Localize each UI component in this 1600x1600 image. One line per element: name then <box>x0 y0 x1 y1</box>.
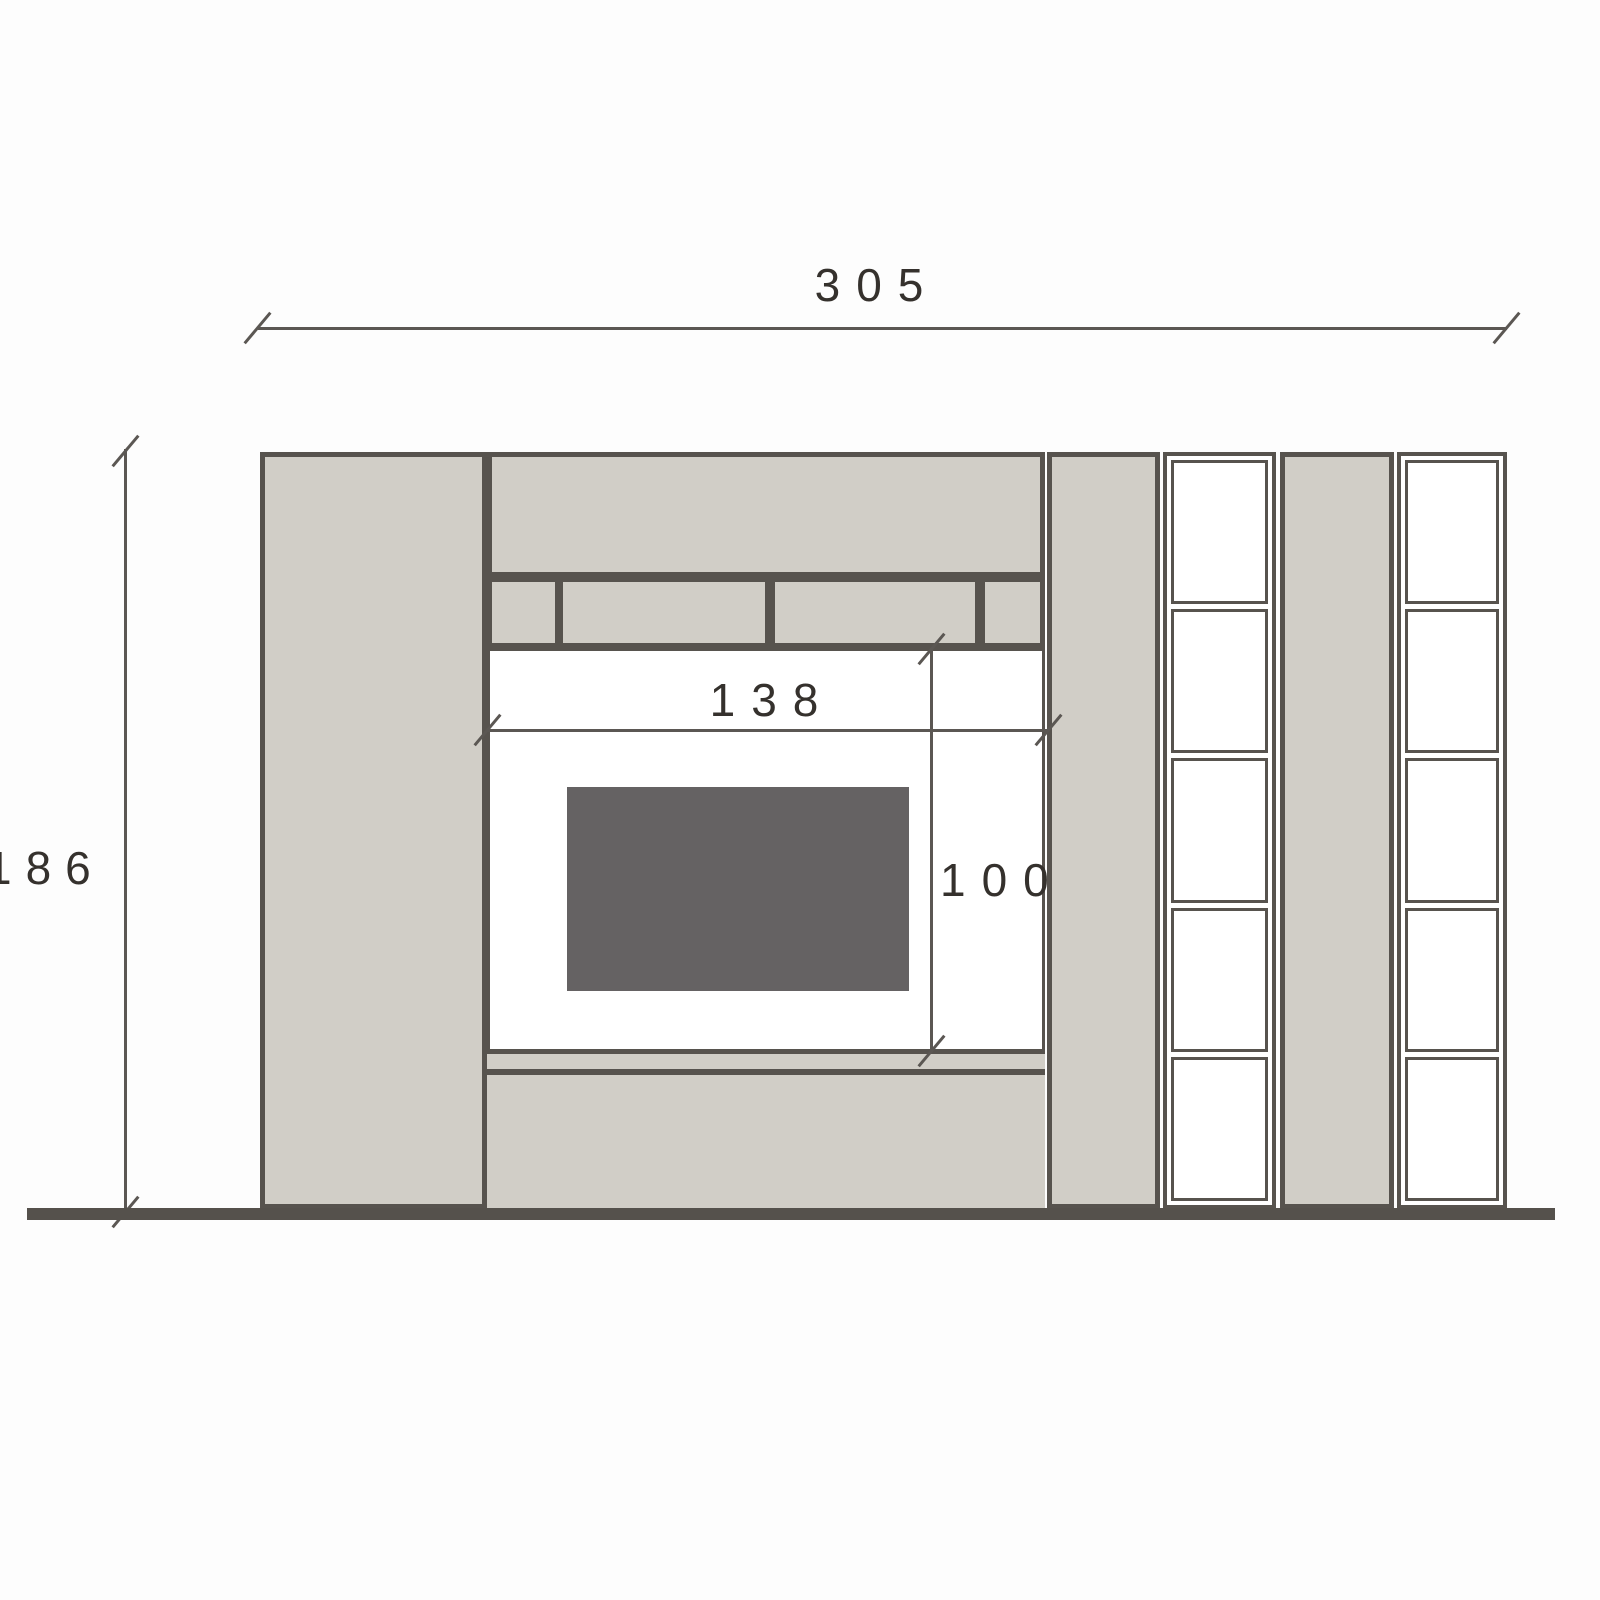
shelf-cell <box>1171 460 1268 604</box>
shelf-cell <box>1405 908 1499 1052</box>
shelf-cell <box>1405 609 1499 753</box>
niche-height-label: 100 <box>940 857 1065 903</box>
shelf-cell <box>1171 609 1268 753</box>
shelf-cell <box>1405 758 1499 902</box>
shelf-cell <box>1405 1057 1499 1201</box>
compartment-row <box>487 577 1045 648</box>
left-tall-cabinet <box>260 452 487 1209</box>
elevation-drawing: 305 186 <box>0 0 1600 1600</box>
niche-bottom-shelf <box>487 1049 1045 1075</box>
shelf-cell <box>1405 460 1499 604</box>
shelf-cell <box>1171 1057 1268 1201</box>
compartment-cell <box>563 582 765 643</box>
compartment-cell <box>985 582 1040 643</box>
side-panel-a <box>1047 452 1160 1209</box>
open-shelf-unit-b <box>1397 452 1507 1209</box>
ground-line <box>27 1208 1555 1220</box>
overall-height-dimension-line <box>124 449 127 1214</box>
overall-width-dimension-line <box>258 327 1507 330</box>
side-panel-b <box>1280 452 1394 1209</box>
shelf-cell <box>1171 908 1268 1052</box>
base-cabinet <box>487 1075 1045 1209</box>
overall-height-label: 186 <box>0 845 105 891</box>
niche-width-label: 138 <box>672 677 872 723</box>
niche-width-dimension-line <box>487 729 1049 732</box>
top-cabinet <box>487 452 1045 577</box>
tv-screen <box>567 787 909 991</box>
open-shelf-unit-a <box>1163 452 1276 1209</box>
compartment-cell <box>492 582 555 643</box>
shelf-cell <box>1171 758 1268 902</box>
niche-height-dimension-line <box>930 648 933 1052</box>
overall-width-label: 305 <box>777 262 977 308</box>
